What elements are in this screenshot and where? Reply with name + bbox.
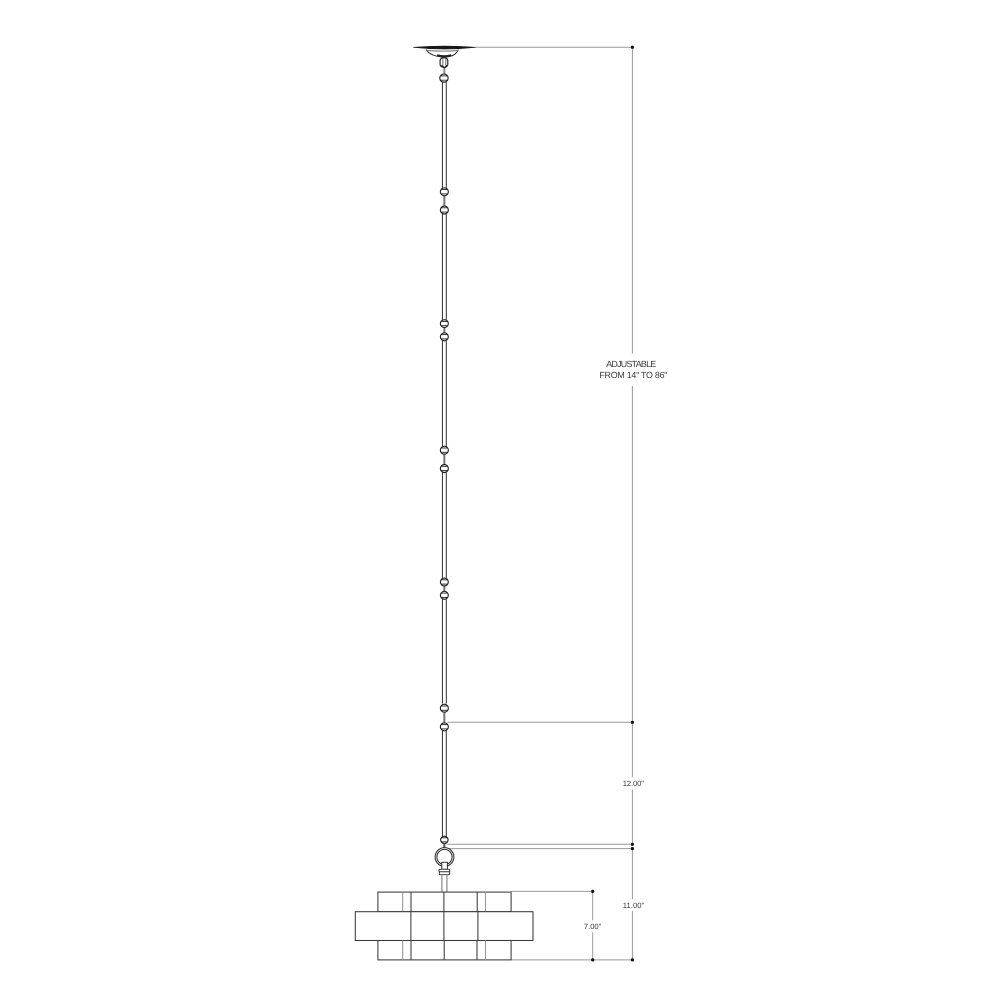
svg-text:ADJUSTABLE: ADJUSTABLE <box>606 359 656 369</box>
svg-text:12.00": 12.00" <box>623 779 644 788</box>
svg-text:7.00": 7.00" <box>584 922 602 931</box>
svg-text:11.00": 11.00" <box>623 901 645 910</box>
svg-text:FROM 14" TO 86": FROM 14" TO 86" <box>599 370 667 380</box>
